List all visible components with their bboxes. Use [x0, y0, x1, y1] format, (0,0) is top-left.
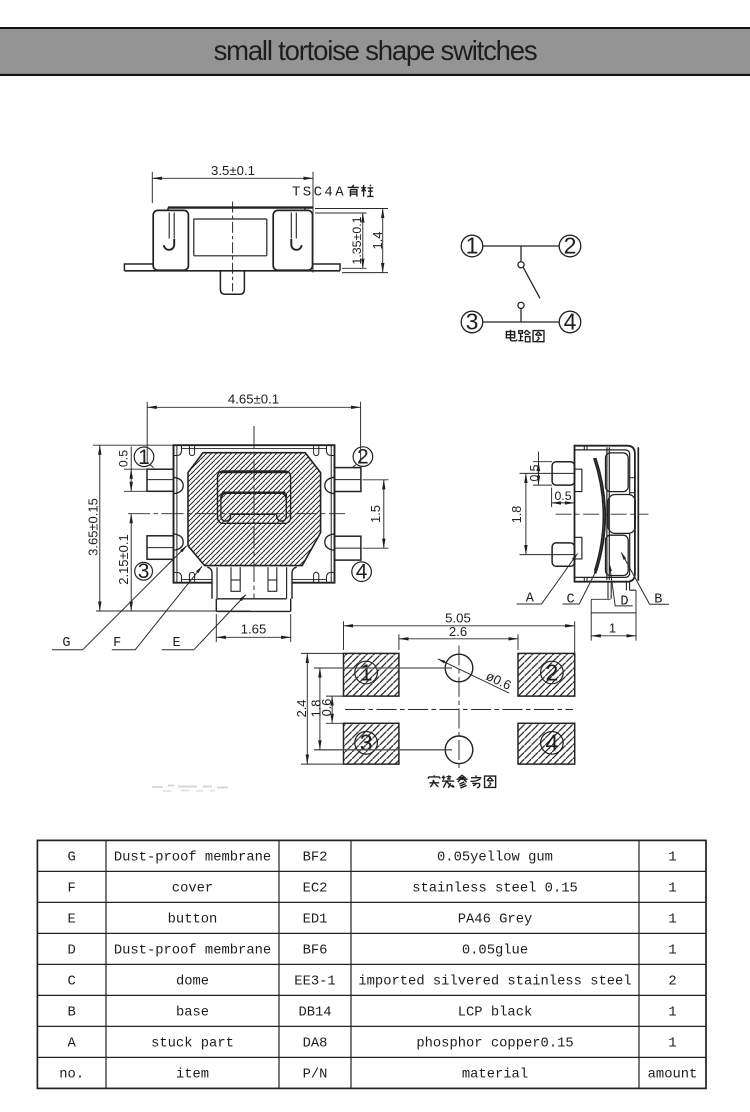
svg-text:material: material [462, 1067, 528, 1083]
svg-text:1: 1 [668, 1006, 676, 1021]
svg-text:dome: dome [176, 974, 209, 990]
svg-text:2.15±0.1: 2.15±0.1 [116, 534, 131, 585]
svg-text:4: 4 [356, 561, 368, 584]
svg-text:1: 1 [360, 659, 373, 685]
svg-text:4.65±0.1: 4.65±0.1 [228, 392, 279, 407]
svg-text:2: 2 [546, 659, 559, 685]
svg-text:3.5±0.1: 3.5±0.1 [211, 163, 255, 178]
svg-text:PA46 Grey: PA46 Grey [458, 913, 533, 928]
svg-text:LCP black: LCP black [458, 1005, 533, 1021]
svg-text:1: 1 [466, 233, 479, 259]
svg-text:item: item [176, 1067, 209, 1083]
svg-text:B: B [68, 1006, 76, 1021]
svg-text:3.65±0.15: 3.65±0.15 [86, 498, 101, 556]
svg-text:EC2: EC2 [303, 882, 328, 897]
svg-text:1.35±0.1: 1.35±0.1 [350, 216, 364, 264]
svg-text:1: 1 [668, 913, 676, 928]
svg-text:stuck part: stuck part [151, 1036, 234, 1052]
svg-text:2.6: 2.6 [449, 624, 467, 639]
svg-text:1: 1 [668, 944, 676, 959]
svg-text:3: 3 [466, 309, 479, 335]
svg-text:2: 2 [357, 446, 369, 469]
svg-text:E: E [173, 636, 181, 651]
svg-text:1.65: 1.65 [241, 622, 267, 637]
svg-text:1: 1 [609, 621, 616, 636]
svg-text:cover: cover [172, 882, 213, 897]
svg-text:1.5: 1.5 [368, 505, 383, 523]
svg-text:2.4: 2.4 [294, 700, 309, 718]
svg-text:Dust-proof membrane: Dust-proof membrane [114, 943, 271, 959]
svg-text:B: B [654, 593, 662, 608]
svg-text:0.05yellow gum: 0.05yellow gum [437, 850, 553, 866]
svg-text:2: 2 [668, 975, 676, 990]
svg-text:ED1: ED1 [303, 913, 328, 928]
svg-text:G: G [62, 636, 70, 651]
svg-text:TSC4A: TSC4A [292, 185, 346, 201]
svg-text:G: G [68, 851, 76, 866]
svg-text:BF2: BF2 [303, 851, 328, 866]
svg-text:4: 4 [564, 309, 577, 335]
svg-text:P/N: P/N [303, 1067, 328, 1083]
svg-text:1: 1 [668, 1037, 676, 1052]
svg-text:3: 3 [360, 730, 373, 756]
svg-text:button: button [168, 912, 218, 928]
svg-text:4: 4 [546, 730, 559, 756]
svg-text:base: base [176, 1005, 209, 1021]
svg-text:0.5: 0.5 [554, 489, 571, 503]
svg-text:A: A [68, 1037, 77, 1052]
svg-text:D: D [68, 944, 76, 959]
svg-text:DA8: DA8 [303, 1037, 328, 1052]
svg-text:1: 1 [668, 882, 676, 897]
svg-text:D: D [620, 595, 628, 610]
svg-text:C: C [68, 975, 76, 990]
svg-text:small tortoise shape switches: small tortoise shape switches [214, 35, 537, 66]
svg-text:amount: amount [648, 1068, 698, 1083]
svg-text:C: C [566, 593, 574, 608]
svg-text:F: F [113, 636, 121, 651]
svg-text:E: E [68, 913, 76, 928]
svg-text:0.5: 0.5 [117, 450, 131, 467]
svg-text:DB14: DB14 [298, 1006, 331, 1021]
svg-text:F: F [68, 882, 76, 897]
svg-text:0.6: 0.6 [319, 699, 334, 717]
svg-text:no.: no. [59, 1068, 84, 1083]
svg-text:1: 1 [138, 446, 150, 469]
svg-text:3: 3 [138, 560, 150, 583]
svg-text:2: 2 [564, 233, 577, 259]
svg-text:1: 1 [668, 851, 676, 866]
svg-text:0.05glue: 0.05glue [462, 943, 528, 959]
svg-text:BF6: BF6 [303, 944, 328, 959]
svg-text:imported silvered stainless st: imported silvered stainless steel [358, 974, 631, 990]
svg-text:EE3-1: EE3-1 [294, 975, 335, 990]
svg-text:phosphor copper0.15: phosphor copper0.15 [416, 1036, 573, 1052]
svg-text:Dust-proof membrane: Dust-proof membrane [114, 850, 271, 866]
svg-text:1.4: 1.4 [370, 231, 385, 249]
svg-text:1.8: 1.8 [510, 506, 524, 523]
svg-text:0.5: 0.5 [528, 464, 542, 481]
svg-text:stainless steel 0.15: stainless steel 0.15 [412, 881, 578, 897]
